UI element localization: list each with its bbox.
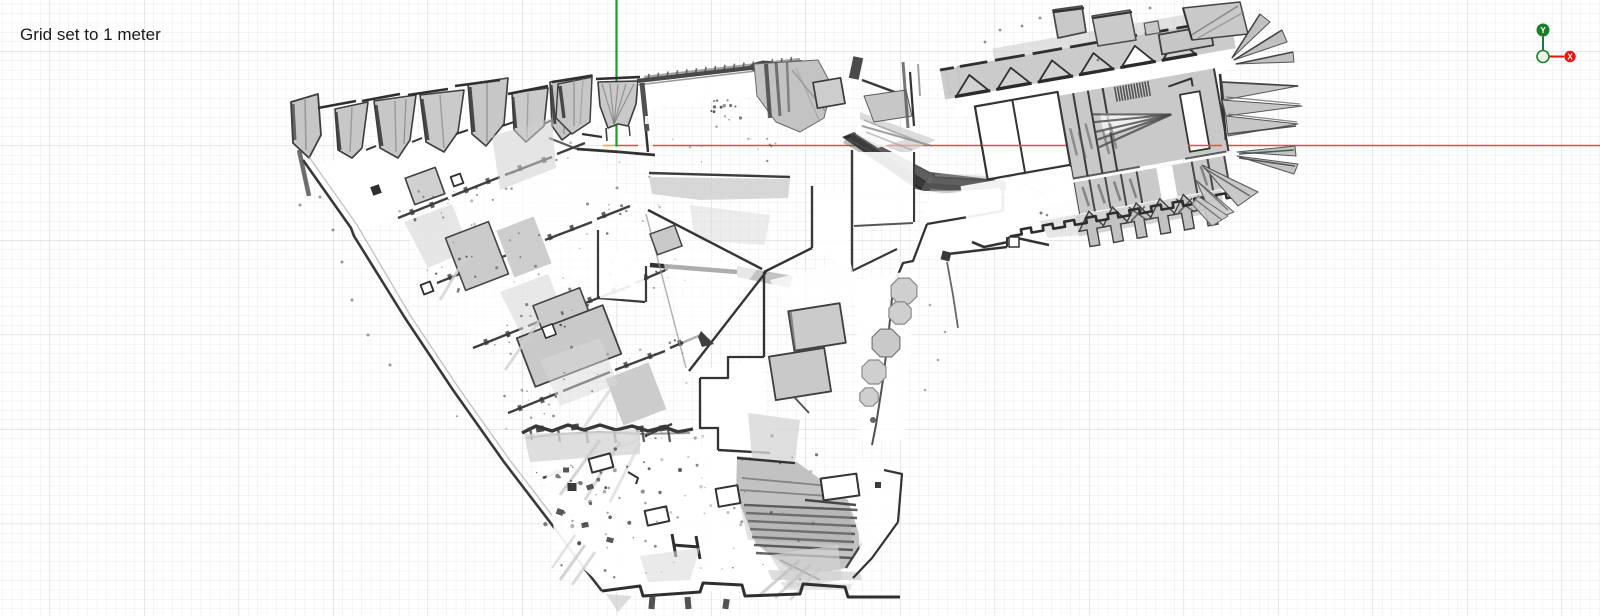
svg-text:X: X bbox=[1567, 53, 1573, 62]
svg-text:Grid set to 1 meter: Grid set to 1 meter bbox=[20, 25, 161, 44]
svg-text:Y: Y bbox=[1540, 26, 1546, 35]
